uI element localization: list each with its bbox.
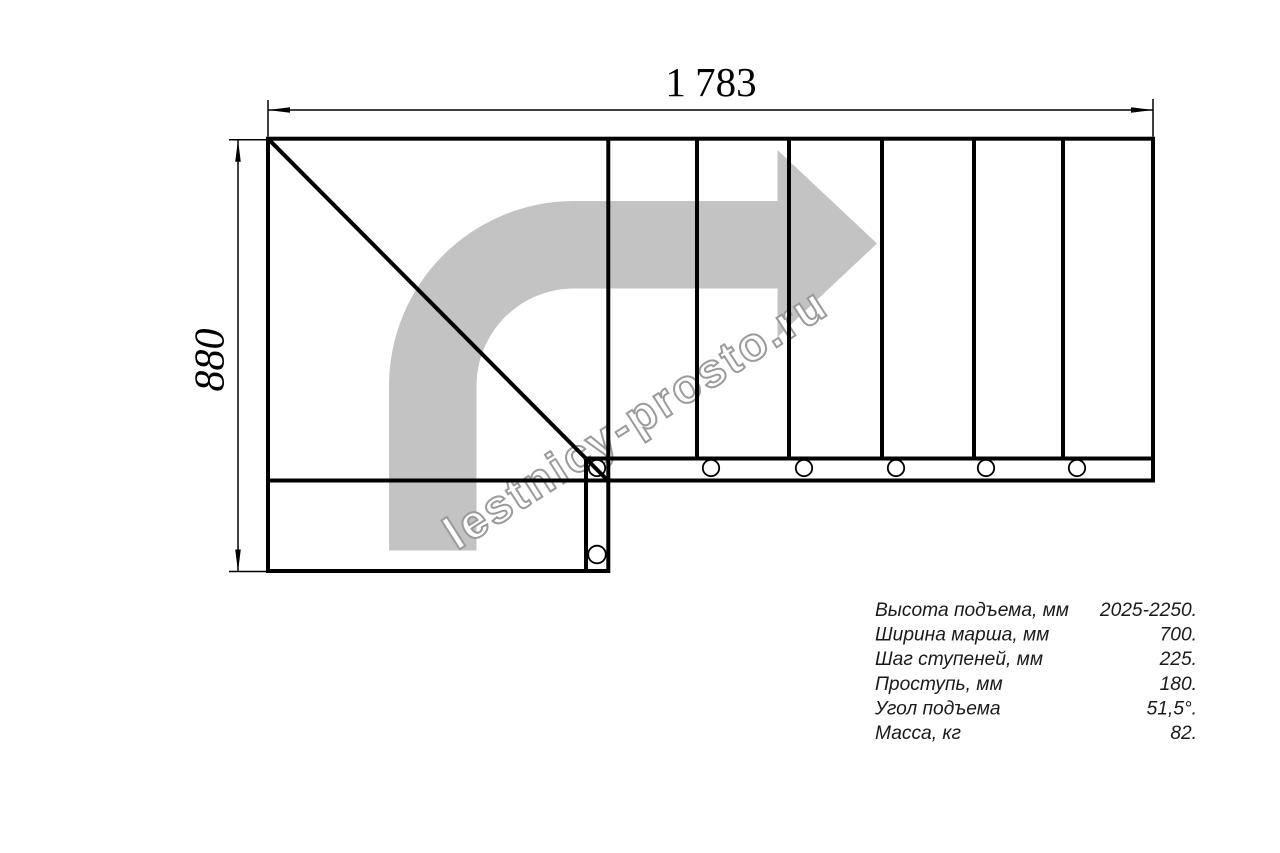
svg-text:180.: 180. (1160, 674, 1197, 695)
svg-text:1 783: 1 783 (665, 59, 756, 105)
svg-text:Проступь, мм: Проступь, мм (875, 674, 1003, 695)
svg-text:225.: 225. (1159, 649, 1197, 670)
svg-text:700.: 700. (1160, 625, 1197, 646)
svg-text:Угол подъема: Угол подъема (874, 698, 1001, 719)
svg-text:Масса, кг: Масса, кг (875, 723, 961, 744)
svg-text:Шаг ступеней, мм: Шаг ступеней, мм (875, 649, 1043, 670)
svg-text:2025-2250.: 2025-2250. (1099, 600, 1197, 621)
svg-text:82.: 82. (1170, 723, 1197, 744)
svg-text:880: 880 (188, 329, 234, 392)
svg-text:Высота подъема, мм: Высота подъема, мм (875, 600, 1069, 621)
svg-text:Ширина марша, мм: Ширина марша, мм (875, 625, 1049, 646)
svg-text:51,5°.: 51,5°. (1147, 698, 1197, 719)
